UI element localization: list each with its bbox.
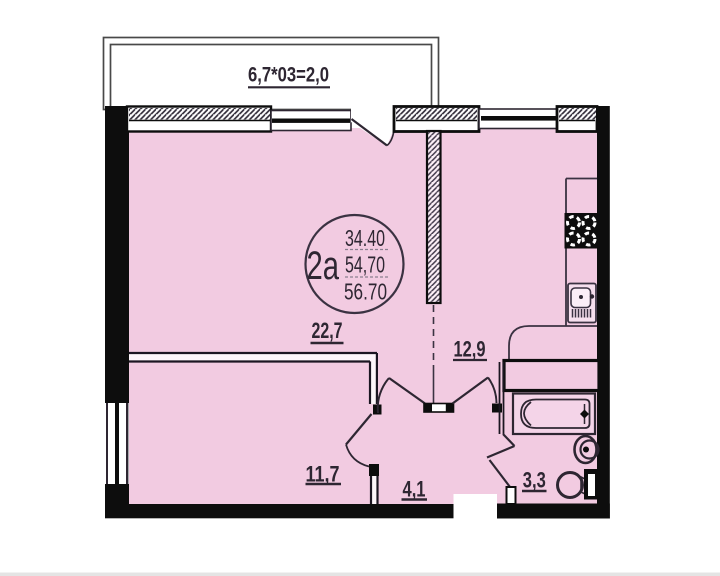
svg-text:3,3: 3,3 xyxy=(523,468,546,493)
svg-text:54,70: 54,70 xyxy=(345,252,385,278)
svg-text:12,9: 12,9 xyxy=(454,337,486,362)
svg-text:4,1: 4,1 xyxy=(403,477,426,502)
svg-text:22,7: 22,7 xyxy=(312,318,343,343)
svg-text:2a: 2a xyxy=(307,244,340,288)
svg-text:56.70: 56.70 xyxy=(344,279,387,305)
svg-text:11,7: 11,7 xyxy=(306,462,340,487)
svg-text:6,7*03=2,0: 6,7*03=2,0 xyxy=(248,64,329,87)
svg-text:34.40: 34.40 xyxy=(345,225,385,251)
